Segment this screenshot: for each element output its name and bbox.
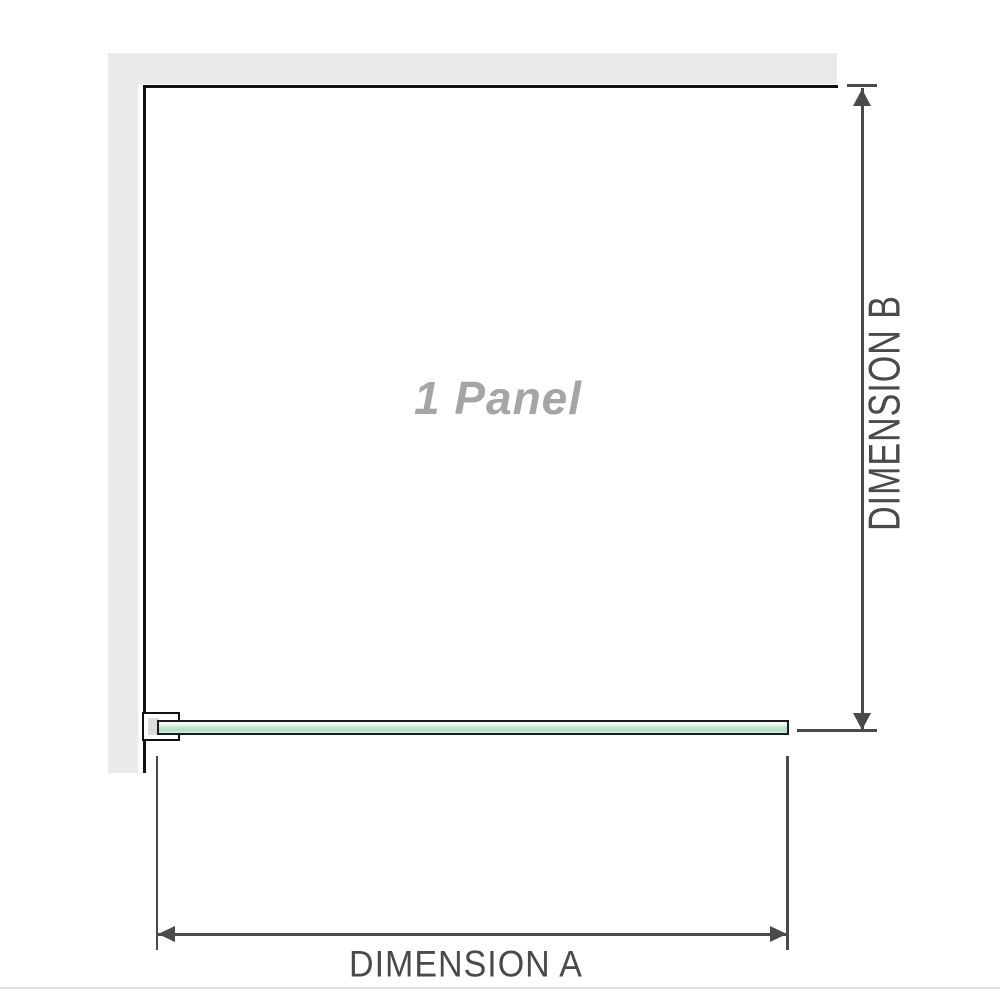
dimension-b-top-tick [847, 84, 877, 87]
dimension-a-label: DIMENSION A [349, 944, 583, 987]
dimension-a-extension-right [786, 756, 789, 950]
dimension-a-line [158, 933, 787, 936]
panel-count-label: 1 Panel [414, 371, 582, 425]
dimension-b-arrow-down-icon [853, 713, 871, 730]
wall-top [108, 53, 837, 84]
wall-inner-edge-left [143, 85, 146, 773]
dimension-a-arrow-left-icon [158, 926, 175, 942]
dimension-b-label: DIMENSION B [861, 295, 912, 531]
dimension-b-arrow-up-icon [853, 89, 871, 106]
dimension-a-extension-left [156, 756, 159, 950]
glass-panel [157, 720, 789, 735]
dimension-a-arrow-right-icon [770, 926, 787, 942]
wall-left [108, 53, 138, 773]
bottom-divider-line [0, 987, 1000, 989]
wall-inner-edge-top [143, 85, 838, 88]
